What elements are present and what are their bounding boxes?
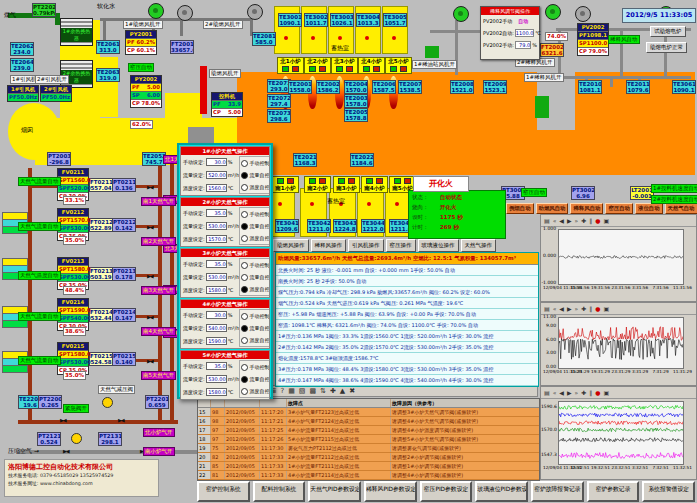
chart-toolbar-icon[interactable]: ▤ (544, 217, 550, 224)
controller-row-PF: PF50.0Hz (41, 93, 71, 101)
instrument-PT0214: PT02140.147 (112, 308, 136, 322)
popup-field: 流量设定:520.00m³/h (181, 168, 239, 181)
mode-radio-2[interactable]: 温度自控 (240, 181, 269, 193)
instrument-value: 1090.1 (279, 20, 301, 26)
controller-row-PF: PF50.0Hz (8, 93, 38, 101)
readout-row: 烟气压力:0.524 kPa 天然气进压:0.619 kPa 气阀压: 0.26… (276, 298, 538, 309)
setpoint-input[interactable]: 530.00 (206, 375, 227, 383)
device-status-label-5: 1#助燃风机开 (123, 20, 163, 29)
chart-toolbar-icon[interactable]: ✚ (581, 305, 586, 312)
chart-toolbar-icon[interactable]: ▤ (544, 389, 550, 396)
instrument-value: 234.0 (11, 49, 33, 55)
controller-tag: FV0211 (58, 169, 88, 176)
instrument-TE2010: TE20101081.1 (578, 80, 602, 94)
chart-toolbar-icon[interactable]: ▣ (604, 389, 610, 396)
instrument-value: 1578.8 (345, 115, 367, 121)
chart-toolbar-icon[interactable]: ▣ (604, 217, 610, 224)
instrument-value: 297.4 (268, 101, 290, 107)
device-status-label-10: 1#稀油站风机开 (412, 60, 457, 69)
mode-radio-group: 手动控制流量自控温度自控 (239, 309, 270, 347)
valve-icon[interactable]: ▶◀ (147, 273, 153, 279)
instrument-value: 1538.5 (399, 87, 421, 93)
setpoint-input[interactable]: 520.00 (206, 171, 227, 179)
pressure-regulator-icon (102, 397, 113, 408)
small-button-16[interactable]: 助熔电炉正常 (646, 42, 687, 53)
mode-radio-0[interactable]: 手动控制 (240, 310, 269, 322)
alarm-toolbar-icon[interactable]: ▩ (309, 387, 316, 395)
chart-toolbar-icon[interactable]: « (553, 389, 557, 396)
mode-radio-0[interactable]: 手动控制 (240, 361, 269, 373)
chart-toolbar-icon[interactable]: ● (595, 305, 600, 312)
instrument-value: 1211.0 (308, 226, 330, 232)
pipe (18, 420, 178, 424)
instrument-TE2008: TE20081521.0 (450, 80, 474, 94)
chart-xtick: 23:31:56 (612, 285, 631, 290)
alarm-row[interactable]: 21852012/09/0511:17:331#小炉流量FT2111过高或过低请… (198, 462, 539, 471)
instrument-value: 1212.0 (362, 226, 384, 232)
nav-button[interactable]: 窑炉参数记录 (587, 481, 640, 502)
fan-icon (575, 6, 591, 22)
radio-icon[interactable] (241, 325, 248, 332)
instrument-TE3041: TE30411209.6 (275, 219, 299, 233)
valve-icon[interactable]: ▶◀ (147, 358, 153, 364)
instrument-FT0212: FT0212522.89 (89, 218, 113, 232)
instrument-value: 1224.8 (334, 226, 356, 232)
auto-mode-button[interactable]: 液位自动 (635, 203, 663, 214)
setpoint-input[interactable]: 35.0 (206, 362, 227, 370)
instrument-value: 1587.5 (373, 87, 395, 93)
pipe (28, 168, 32, 423)
alarm-row[interactable]: 20822012/09/0511:17:332#小炉流量FT2112过高或过低请… (198, 453, 539, 462)
chart-toolbar-icon[interactable]: ∥ (589, 389, 592, 396)
mode-radio-2[interactable]: 温度自控 (240, 385, 269, 397)
fan-icon-running (545, 4, 561, 20)
small-furnace-北4小炉[interactable]: 北4小炉 (358, 57, 385, 74)
led-off-icon (404, 178, 411, 184)
setpoint-input[interactable]: 1580.0 (206, 388, 227, 396)
instrument-value: 6321.6 (541, 50, 563, 56)
led-on-icon (277, 178, 284, 184)
controller-row-SPF: SPF530.00 (58, 273, 88, 281)
chart-plot-area (558, 317, 684, 369)
led-on-icon (390, 66, 397, 72)
led-on-icon (309, 66, 316, 72)
auto-mode-button[interactable]: 助燃风自动 (536, 203, 569, 214)
small-furnace-南4小炉[interactable]: 南4小炉 (361, 176, 388, 193)
instrument-value: 0.147 (113, 315, 135, 321)
small-furnace-label: 北2小炉 (307, 58, 327, 64)
port-indicator-dot (338, 36, 342, 40)
instrument-PT2003: PT2003-296.8 (47, 152, 71, 166)
radio-icon[interactable] (241, 364, 248, 371)
instrument-value: 313.0 (97, 47, 119, 53)
popup-field: 温度设定:1580.0℃ (181, 385, 239, 398)
oil-station-pump (425, 46, 439, 58)
valve-icon[interactable]: ▶◀ (147, 184, 153, 190)
auto-status-label-25: 天然气温度自动 (18, 271, 61, 280)
chart-xtick: 7:32:51 (653, 465, 669, 470)
chart-toolbar-icon[interactable]: » (575, 389, 579, 396)
mode-radio-1[interactable]: 流量自控 (240, 169, 269, 181)
radio-icon[interactable] (241, 388, 248, 395)
fan-icon (177, 5, 193, 21)
instrument-TE2064: TE2064239.0 (10, 58, 34, 72)
vendor-phone: 技术服务电话: 0379-65185029 13525974529 (8, 472, 155, 480)
small-furnace-南1小炉[interactable]: 南1小炉 (272, 176, 299, 193)
instrument-value: -296.8 (48, 159, 70, 165)
popup-field: 温度设定:1560.0℃ (181, 181, 239, 194)
chart-toolbar-icon[interactable]: » (575, 217, 579, 224)
nav-button[interactable]: 配料控制系统 (253, 481, 306, 502)
batch-charger-machine (535, 96, 549, 118)
mode-radio-group: 手动控制流量自控温度自控 (239, 207, 270, 245)
instrument-FT2001: FT200133657.6 (170, 40, 194, 54)
chart-toolbar-icon[interactable]: ▶ (567, 217, 572, 224)
setpoint-input[interactable]: 540.00 (206, 324, 227, 332)
instrument-FT0215: FT0215524.58 (89, 352, 113, 366)
readout-row: 窑压: +5.98 Pa 烟道闸压: +5.88 Pa 阀位: 63.9% 自设… (276, 309, 538, 320)
chart-toolbar-icon[interactable]: ● (595, 217, 600, 224)
controller-row-PF: PF1098.1 (578, 31, 608, 39)
radio-icon[interactable] (241, 262, 248, 269)
alarm-event-table: 故障点故障原因（供参考）15982012/09/0511:17:203#小炉气量… (197, 398, 540, 481)
chart-toolbar-icon[interactable]: ▶ (567, 305, 572, 312)
auto-status-label-22: 2#投料机速度自动 (651, 195, 697, 204)
burner-led-pair (332, 65, 357, 73)
instrument-value: 1209.6 (276, 226, 298, 232)
controller-tag: FV0214 (58, 299, 88, 306)
instrument-value: 1090.1 (673, 87, 695, 93)
nav-button[interactable]: 天然气PID参数设定 (308, 481, 361, 502)
valve-position-value-28: 33.1% (63, 196, 86, 205)
small-furnace-label: 南3小炉 (336, 185, 356, 191)
chart-toolbar-icon[interactable]: ▣ (604, 305, 610, 312)
controller-row-CP: CP60.1% (126, 46, 156, 54)
chart-ytick: 9.00 (541, 323, 556, 328)
fan-icon (247, 4, 263, 20)
instrument-value: 524.58 (90, 359, 112, 365)
alarm-toolbar-icon[interactable]: ▧ (299, 387, 306, 395)
chart-xtick: 15:31:56 (571, 285, 590, 290)
controller-tag: 投料机 (212, 93, 242, 100)
controller-panel-PV2002: PV2002PF1098.1SP1100.0CP79.0% (577, 23, 609, 56)
burner-led-pair (390, 177, 415, 185)
small-furnace-南3小炉[interactable]: 南3小炉 (333, 176, 360, 193)
mode-radio-2[interactable]: 温度自控 (240, 334, 269, 346)
instrument-TE2021: TE20211168.3 (293, 153, 317, 167)
chart-toolbar-icon[interactable]: ∥ (589, 305, 592, 312)
controller-row-SPF: SPF540.00 (58, 314, 88, 322)
controller-row-SPT: SPT1580.0 (58, 350, 88, 358)
instrument-value: 1586.2 (317, 87, 339, 93)
setpoint-input[interactable]: 1560.0 (206, 184, 227, 192)
alarm-row[interactable]: 15982012/09/0511:17:203#小炉气量FT2123过高或过低请… (198, 408, 539, 417)
auto-status-label-43: 紧急阀开 (63, 404, 89, 413)
nav-button[interactable]: 窑炉故障报警记录 (531, 481, 584, 502)
chart-toolbar-icon[interactable]: ◀ (559, 389, 564, 396)
auto-mode-button[interactable]: 窑压自动 (605, 203, 633, 214)
readout-row: 5#压力:0.140 MPa 5阀位: 35.0% 5温设:1580.0℃ 5流… (276, 386, 538, 387)
instrument-value: 319.0 (97, 75, 119, 81)
instrument-value: 298.6 (268, 116, 290, 122)
chart-xtick: 3:31:29 (632, 369, 648, 374)
small-furnace-北2小炉[interactable]: 北2小炉 (304, 57, 331, 74)
instrument-value: 1011.7 (305, 20, 327, 26)
auto-status-label-20: 窑压自动 (521, 188, 547, 197)
led-on-icon (394, 178, 401, 184)
radio-icon[interactable] (241, 223, 248, 230)
small-furnace-南2小炉[interactable]: 南2小炉 (304, 176, 331, 193)
instrument-TE3061: TE30611090.1 (672, 80, 696, 94)
readout-row: 1#压力:0.136 MPa 1阀位: 33.3% 1温设:1560.0℃ 1流… (276, 331, 538, 342)
nav-button[interactable]: 玻璃液位PID参数设定 (475, 481, 528, 502)
auto-mode-button[interactable]: 天然气自动 (665, 203, 697, 214)
combustion-fan-bar (200, 66, 207, 114)
mini-readout-chip (2, 320, 28, 328)
operation-button[interactable]: 窑压操作 (386, 239, 416, 252)
radio-icon[interactable] (241, 235, 248, 242)
chart-toolbar-icon[interactable]: ● (595, 389, 600, 396)
popup-field: 手动设定:35.0% (181, 206, 239, 219)
popup-field: 温度设定:1580.0℃ (181, 283, 239, 296)
radio-icon[interactable] (241, 211, 248, 218)
chart-toolbar-icon[interactable]: ◀ (559, 305, 564, 312)
instrument-FT0213: FT0213503.19 (89, 267, 113, 281)
instrument-TE2006: TE20061587.5 (372, 80, 396, 94)
alarm-toolbar-icon[interactable]: ? (281, 387, 285, 395)
instrument-FT0214: FT0214532.44 (89, 308, 113, 322)
gas-popup-section-2: 2#小炉天然气操作手动设定:35.0%流量设定:530.00m³/h温度设定:1… (180, 197, 270, 247)
chart-ytick: 11.00 (541, 314, 556, 319)
instrument-value: 1079.6 (627, 87, 649, 93)
controller-row-SP: SP6.00 (131, 91, 161, 99)
auto-status-label-26: 天然气流量自动 (18, 312, 61, 321)
instrument-TE2072: TE2072297.4 (267, 94, 291, 108)
alarm-row[interactable]: 22812012/09/0511:17:334#小炉流量FT2114过高或过低请… (198, 471, 539, 480)
radio-icon[interactable] (241, 337, 248, 344)
valve-icon[interactable]: ▶◀ (147, 314, 153, 320)
instrument-PT2202: PT22020.79kPa (32, 3, 56, 17)
alarm-row[interactable]: 17972012/09/0511:17:254#小炉流量FT2114过高或过低请… (198, 426, 539, 435)
instrument-TE3042: TE30421211.0 (307, 219, 331, 233)
port-indicator-dot (367, 202, 371, 206)
chart-toolbar-icon[interactable]: ∥ (589, 217, 592, 224)
led-off-icon (376, 178, 383, 184)
radio-icon[interactable] (241, 286, 248, 293)
radio-icon[interactable] (241, 274, 248, 281)
instrument-TE3001: TE30011090.1 (278, 13, 302, 27)
mode-radio-group: 手动控制流量自控温度自控 (239, 258, 270, 296)
chart-xtick: 19:31:56 (591, 285, 610, 290)
trend-chart-1: ▤«◀▶»✚∥●▣1.0000.000-1.00012/09/04 11:31:… (540, 214, 697, 302)
setpoint-input[interactable]: 35.0 (206, 209, 227, 217)
mode-radio-0[interactable]: 手动控制 (240, 208, 269, 220)
small-furnace-北1小炉[interactable]: 北1小炉 (277, 57, 304, 74)
radio-icon[interactable] (241, 313, 248, 320)
mode-radio-1[interactable]: 流量自控 (240, 220, 269, 232)
firing-status-box: 状态：自动状态烧向：开化火设时：1175 秒计时：269 秒 (408, 190, 506, 239)
alarm-toolbar-icon[interactable]: ▲ (340, 387, 345, 395)
static-text-17: 蓄热室 (330, 44, 350, 52)
popup-field: 手动设定:35.0% (181, 359, 239, 372)
instrument-value: 503.19 (90, 274, 112, 280)
mode-radio-1[interactable]: 流量自控 (240, 322, 269, 334)
dilution-valve-operation-panel: 稀释风调节阀操作 PV2002手动 自动 PV2002自动: 1100.0 ℃ … (480, 6, 540, 60)
valve-icon[interactable]: ▶◀ (63, 448, 69, 454)
instrument-TE2001: TE20011558.0 (288, 80, 312, 94)
radio-icon[interactable] (241, 376, 248, 383)
auto-mode-button[interactable]: 倒烟自动 (506, 203, 534, 214)
setpoint-input[interactable]: 530.00 (206, 222, 227, 230)
mode-radio-0[interactable]: 手动控制 (240, 157, 269, 169)
gas-popup-section-5: 5#小炉天然气操作手动设定:35.0%流量设定:530.00m³/h温度设定:1… (180, 350, 270, 400)
popup-field: 手动设定:30.0% (181, 155, 239, 168)
controller-tag: FV0213 (58, 258, 88, 265)
controller-row-SPF: SPF530.00 (58, 358, 88, 366)
auto-status-label-13: 稀释风自动 (608, 35, 640, 44)
operation-button[interactable]: 稀释风操作 (311, 239, 347, 252)
setpoint-input[interactable]: 1590.0 (206, 337, 227, 345)
controller-row-SPF: SPF530.00 (58, 224, 88, 232)
instrument-value: -0.001 (631, 193, 653, 199)
popup-section-title: 1#小炉天然气操作 (181, 147, 269, 155)
setpoint-input[interactable]: 35.0 (206, 260, 227, 268)
small-furnace-label: 南1小炉 (275, 185, 295, 191)
mode-radio-2[interactable]: 温度自控 (240, 283, 269, 295)
operation-button[interactable]: 天然气操作 (461, 239, 497, 252)
heat-exchanger-1: 1#余热换热器 (60, 18, 93, 46)
instrument-TE3044: TE30441212.0 (361, 219, 385, 233)
chart-toolbar-icon[interactable]: ▶ (567, 389, 572, 396)
burner-led-pair (278, 65, 303, 73)
controller-row-SPT: SPT1560.0 (58, 176, 88, 184)
chart-toolbar-icon[interactable]: ✚ (581, 389, 586, 396)
auto-status-label-8: 窑压自动 (128, 63, 154, 72)
alarm-header-row: 故障点故障原因（供参考） (198, 399, 539, 408)
dilution-mode-value[interactable]: 自动 (518, 18, 528, 24)
chart-toolbar-icon[interactable]: » (575, 305, 579, 312)
readout-row: 4#压力:0.147 MPa 4阀位: 38.6% 4温设:1590.0℃ 4流… (276, 375, 538, 386)
radio-icon[interactable] (241, 160, 248, 167)
valve-icon[interactable]: ▶◀ (118, 417, 124, 423)
device-status-label-44: 天然气减压阀 (98, 385, 135, 394)
setpoint-input[interactable]: 530.00 (206, 273, 227, 281)
popup-field: 手动设定:35.0% (181, 257, 239, 270)
readout-row: 北换火时间: 25 秒 液位: -0.001 mm 自设: +0.000 mm … (276, 265, 538, 276)
instrument-FT0211: FT0211557.04 (89, 178, 113, 192)
status-row: 设时：1175 秒 (412, 212, 502, 222)
popup-section-title: 5#小炉天然气操作 (181, 351, 269, 359)
small-furnace-北3小炉[interactable]: 北3小炉 (331, 57, 358, 74)
dilution-auto-setpoint-field[interactable]: 1100.0 (515, 29, 535, 37)
radio-icon[interactable] (241, 172, 248, 179)
chart-toolbar-icon[interactable]: ◀ (559, 217, 564, 224)
chart-toolbar-icon[interactable]: ✚ (581, 217, 586, 224)
instrument-TE2007: TE20071538.5 (398, 80, 422, 94)
controller-row-SP: SP1100.0 (578, 39, 608, 47)
nav-button[interactable]: 窑压PID参数设定 (420, 481, 473, 502)
alarm-row[interactable]: 16982012/09/0511:17:214#小炉气量FT2124过高或过低请… (198, 417, 539, 426)
valve-icon[interactable]: ▶◀ (60, 417, 66, 423)
popup-field: 温度设定:1590.0℃ (181, 334, 239, 347)
alarm-toolbar-icon[interactable]: ▦ (288, 387, 295, 395)
dilution-manual-setpoint-field[interactable]: 79.0 (515, 41, 531, 49)
nav-button[interactable]: 稀释风PID参数设定 (364, 481, 417, 502)
mode-radio-0[interactable]: 手动控制 (240, 259, 269, 271)
chart-toolbar: ▤«◀▶»✚∥●▣ (541, 303, 696, 315)
alarm-toolbar-icon[interactable]: ✖ (349, 387, 355, 395)
alarm-row[interactable]: 18972012/09/0511:17:265#小炉流量FT2115过高或过低请… (198, 435, 539, 444)
valve-open-label-38: 南1天然气开 (141, 197, 176, 206)
valve-icon[interactable]: ▶◀ (147, 224, 153, 230)
gas-popup-section-4: 4#小炉天然气操作手动设定:30.0%流量设定:540.00m³/h温度设定:1… (180, 299, 270, 349)
controller-row-SPT: SPT1570.0 (58, 216, 88, 224)
instrument-TE2004: TE20041570.0 (344, 80, 368, 94)
setpoint-input[interactable]: 30.0 (206, 158, 227, 166)
controller-row-SPF: SPF520.00 (58, 184, 88, 192)
controller-row-CP: CP78.0% (131, 99, 161, 107)
controller-row-PF: PF33.9 (212, 100, 242, 108)
instrument-value: 1570.0 (345, 87, 367, 93)
controller-panel-PY2002: PY2002PF5.00SP6.00CP78.0% (130, 75, 162, 108)
mode-radio-1[interactable]: 流量自控 (240, 373, 269, 385)
setpoint-input[interactable]: 1570.0 (206, 235, 227, 243)
mode-radio-2[interactable]: 温度自控 (240, 232, 269, 244)
chart-xtick: 11:32:51 (673, 465, 692, 470)
small-furnace-北5小炉[interactable]: 北5小炉 (385, 57, 412, 74)
chart-ytick: 6.00 (541, 337, 556, 342)
valve-position-value-30: 48.4% (63, 286, 86, 295)
alarm-row[interactable]: 19752012/09/0511:17:30雾化气压力PT2112过高或过低请调… (198, 444, 539, 453)
gas-popup-section-3: 3#小炉天然气操作手动设定:35.0%流量设定:530.00m³/h温度设定:1… (180, 248, 270, 298)
instrument-value: 0.659 (146, 402, 168, 408)
operation-button[interactable]: 引风机操作 (348, 239, 384, 252)
burner-led-pair (386, 65, 411, 73)
controller-row-CP: CP79.0% (578, 47, 608, 55)
led-on-icon (309, 178, 316, 184)
controller-tag: FV0215 (58, 343, 88, 350)
chart-xtick: 23:32:51 (612, 465, 631, 470)
setpoint-input[interactable]: 1580.0 (206, 286, 227, 294)
mode-radio-1[interactable]: 流量自控 (240, 271, 269, 283)
chart-toolbar-icon[interactable]: « (553, 217, 557, 224)
setpoint-input[interactable]: 30.0 (206, 311, 227, 319)
operation-button[interactable]: 玻璃液位操作 (418, 239, 459, 252)
chart-xtick: 15:32:51 (571, 465, 590, 470)
chart-xtick: 11:31:29 (673, 369, 692, 374)
alarm-toolbar-icon[interactable]: ⇅ (320, 387, 326, 395)
controller-panel-2#引风机: 2#引风机PF50.0Hz (40, 85, 72, 102)
instrument-PT0213: PT02130.178 (112, 267, 136, 281)
small-furnace-gas-popup[interactable]: 1#小炉天然气操作手动设定:30.0%流量设定:520.00m³/h温度设定:1… (177, 143, 273, 399)
chart-toolbar-icon[interactable]: ▤ (544, 305, 550, 312)
popup-section-title: 2#小炉天然气操作 (181, 198, 269, 206)
instrument-value: 1026.1 (331, 20, 353, 26)
instrument-TE2081: TE2081585.0 (252, 32, 276, 46)
operation-button[interactable]: 助燃风操作 (273, 239, 309, 252)
alarm-toolbar-icon[interactable]: ✚ (330, 387, 336, 395)
auto-mode-button[interactable]: 稀释风自动 (570, 203, 603, 214)
nav-button[interactable]: 窑炉控制系统 (197, 481, 250, 502)
pressure-regulator-icon (71, 433, 82, 444)
instrument-value: 1521.0 (451, 87, 473, 93)
static-text-2: 烟囱 (20, 126, 34, 134)
small-button-15[interactable]: 试助熔电炉 (650, 26, 686, 37)
radio-icon[interactable] (241, 184, 248, 191)
nav-button[interactable]: 系统报警值设定 (642, 481, 695, 502)
chart-toolbar-icon[interactable]: « (553, 305, 557, 312)
instrument-PT2201: PT22010.659 (145, 395, 169, 409)
